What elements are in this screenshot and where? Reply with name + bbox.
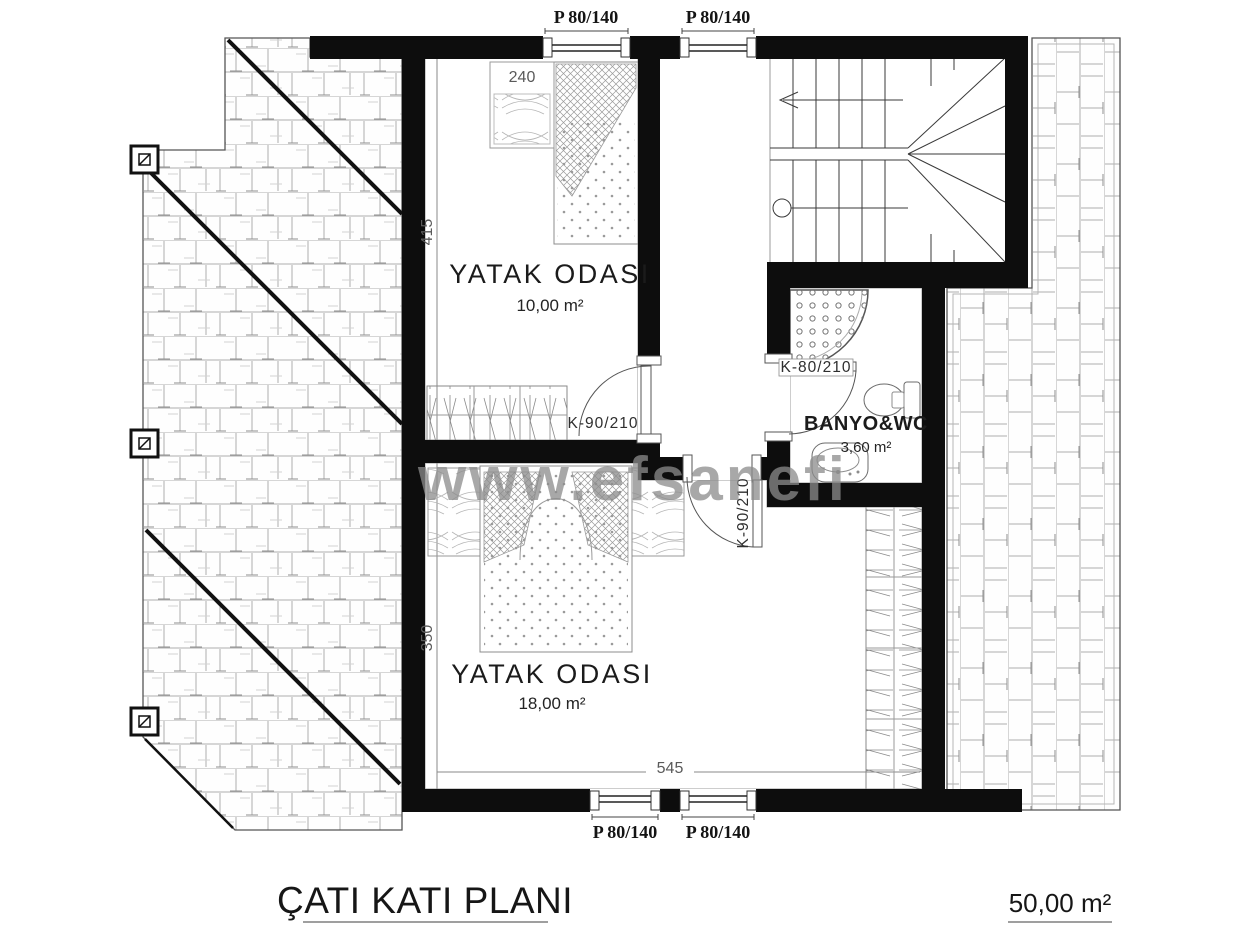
bedroom1-area: 10,00 m²	[516, 296, 583, 315]
door-label-bathroom: K-80/210	[781, 359, 852, 376]
watermark: www.efsanefi	[417, 445, 848, 514]
wall-bath-top	[767, 262, 1028, 288]
wall-bottom-left	[402, 789, 590, 812]
wall-bottom-right	[756, 789, 1022, 812]
wall-left	[402, 36, 425, 812]
nightstand-1	[494, 94, 550, 144]
window-label-top-right: P 80/140	[686, 7, 751, 27]
left-roof	[131, 38, 402, 830]
bedroom2-area: 18,00 m²	[518, 694, 585, 713]
dim-545: 545	[657, 760, 684, 777]
wall-stair-right	[1005, 36, 1028, 288]
bedroom2-name: YATAK ODASI	[451, 659, 653, 689]
wall-top-left	[310, 36, 543, 59]
plan-title: ÇATI KATI PLANI	[277, 880, 573, 921]
total-area: 50,00 m²	[1009, 888, 1112, 918]
dim-350: 350	[419, 625, 436, 652]
dim-240: 240	[509, 69, 536, 86]
window-label-bottom-right: P 80/140	[686, 822, 751, 842]
wall-bottom-mid	[660, 789, 680, 812]
window-label-top-left: P 80/140	[554, 7, 619, 27]
bathroom-area: 3,60 m²	[841, 439, 892, 456]
left-roof-surface	[143, 38, 402, 830]
wall-right	[922, 262, 945, 812]
bathroom-name: BANYO&WC	[804, 413, 928, 435]
dim-415: 415	[419, 219, 436, 246]
wardrobe-1	[427, 386, 567, 444]
wardrobe-2	[866, 506, 922, 790]
floor-plan-page: P 80/140 P 80/140 P 80/140 P 80/140 240 …	[0, 0, 1250, 930]
floor-plan-svg: P 80/140 P 80/140 P 80/140 P 80/140 240 …	[0, 0, 1250, 930]
wall-bath-left-upper	[767, 288, 790, 362]
window-label-bottom-left: P 80/140	[593, 822, 658, 842]
bedroom1-name: YATAK ODASI	[449, 259, 651, 289]
door-label-bedroom1: K-90/210	[568, 415, 639, 432]
wall-top-right	[756, 36, 1028, 59]
wall-bedroom1-right-upper	[638, 36, 660, 363]
